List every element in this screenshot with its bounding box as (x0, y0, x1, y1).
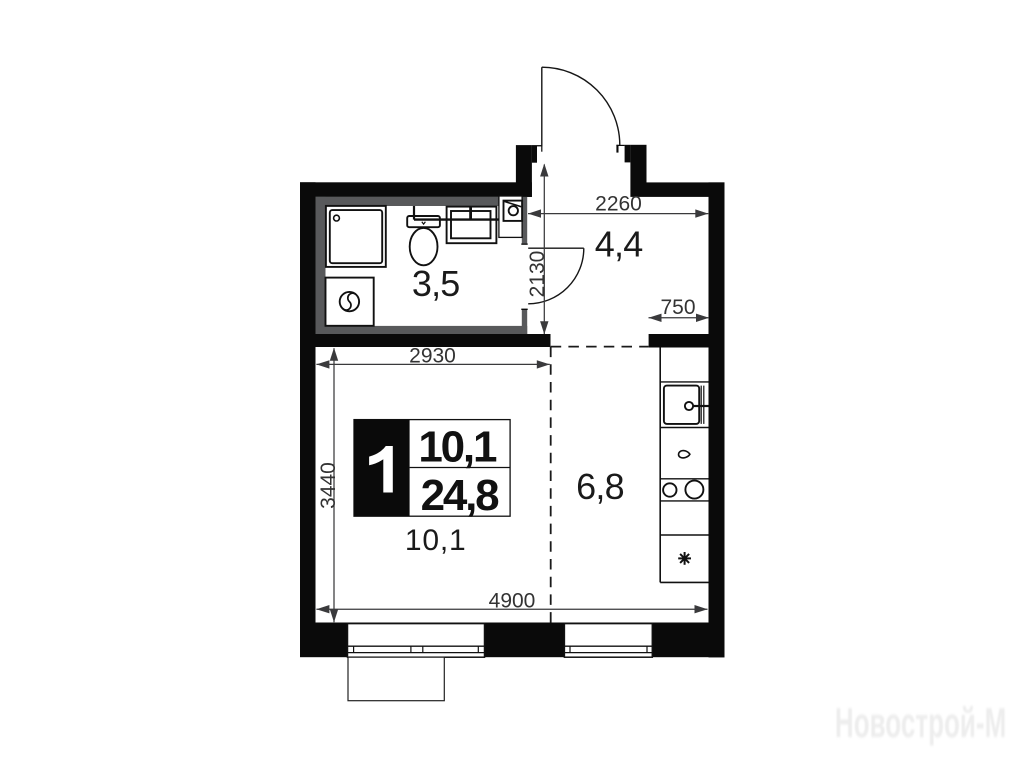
svg-text:4900: 4900 (489, 589, 536, 612)
svg-text:Новострой-М: Новострой-М (835, 700, 1006, 747)
svg-text:2260: 2260 (595, 193, 642, 216)
svg-text:10,1: 10,1 (418, 423, 497, 472)
svg-text:2930: 2930 (409, 345, 456, 368)
svg-text:24,8: 24,8 (421, 471, 500, 520)
svg-text:10,1: 10,1 (405, 524, 467, 557)
svg-text:750: 750 (660, 296, 695, 319)
svg-text:6,8: 6,8 (576, 466, 624, 507)
svg-text:3440: 3440 (317, 462, 340, 509)
svg-text:2130: 2130 (526, 251, 549, 298)
svg-text:3,5: 3,5 (412, 263, 460, 304)
svg-text:4,4: 4,4 (595, 223, 643, 264)
